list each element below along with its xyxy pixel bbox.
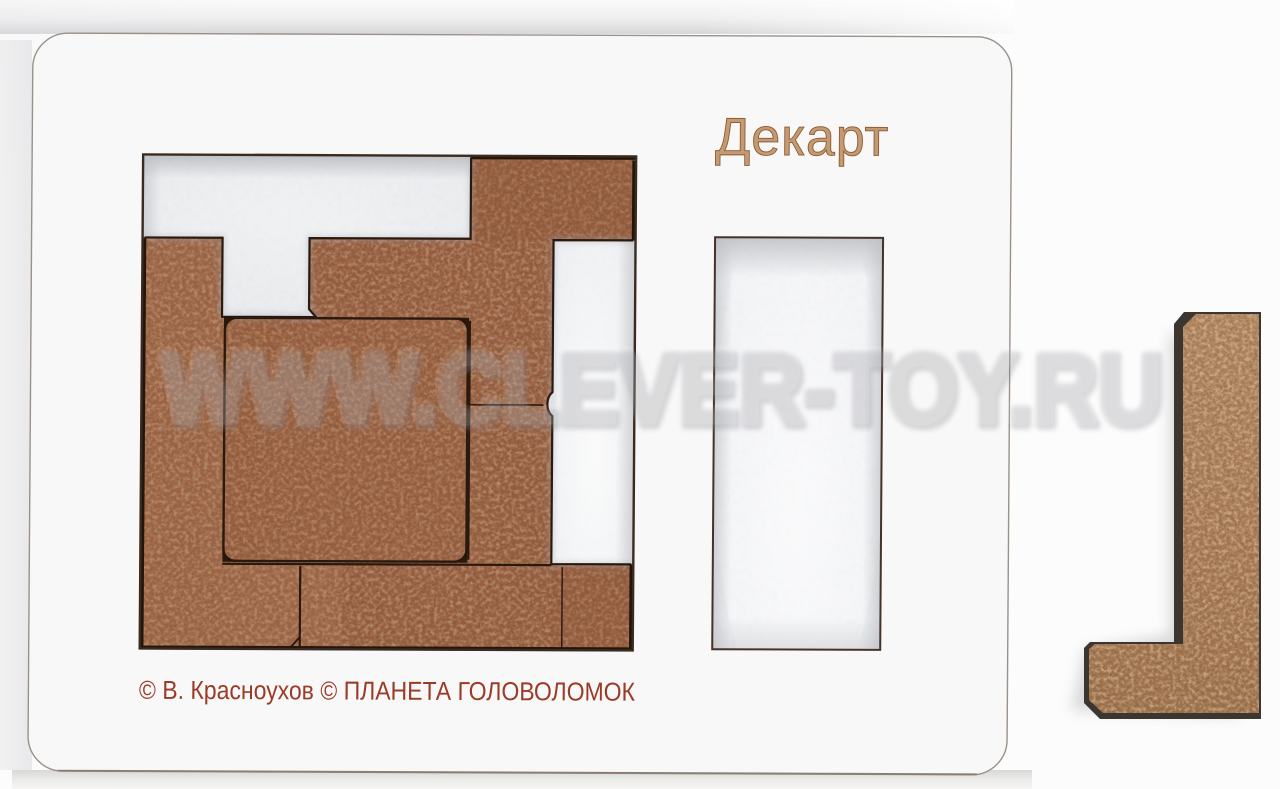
svg-text:WWW.CLEVER-TOY.RU: WWW.CLEVER-TOY.RU [160, 330, 1160, 442]
svg-text:Декарт: Декарт [715, 108, 889, 168]
svg-text:© В. Красноухов © ПЛАНЕТА ГОЛ: © В. Красноухов © ПЛАНЕТА ГОЛОВОЛОМОК [139, 675, 635, 707]
